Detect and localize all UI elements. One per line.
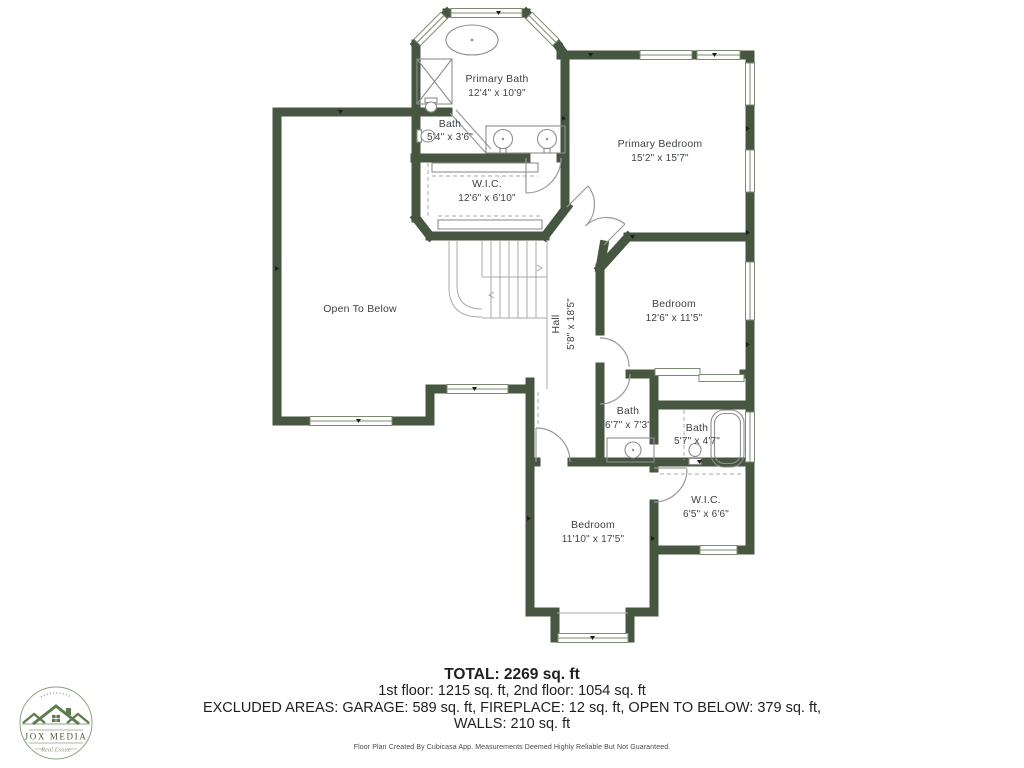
bathtub-oval-symbol <box>446 25 498 55</box>
room-label-bath-2: Bath 5'7" x 4'7" <box>674 422 720 447</box>
stairs-symbol <box>449 240 547 389</box>
logo-tagline: Real Estate <box>40 747 71 754</box>
svg-text:15'2" x 15'7": 15'2" x 15'7" <box>631 153 689 164</box>
room-label-primary-bath: Primary Bath 12'4" x 10'9" <box>465 73 528 99</box>
shower-symbol <box>417 59 452 104</box>
floor-plan: Primary Bath 12'4" x 10'9" Bath 5'4" x 3… <box>0 0 1024 660</box>
svg-text:6'5" x 6'6": 6'5" x 6'6" <box>683 509 729 520</box>
room-label-primary-bedroom: Primary Bedroom 15'2" x 15'7" <box>618 138 703 164</box>
svg-text:Bath: Bath <box>617 405 639 417</box>
svg-text:Bath: Bath <box>439 118 461 130</box>
sliding-door-symbol <box>655 369 744 382</box>
svg-text:12'4" x 10'9": 12'4" x 10'9" <box>468 88 526 99</box>
svg-text:11'10" x 17'5": 11'10" x 17'5" <box>562 534 625 545</box>
window-symbol <box>746 412 755 462</box>
window-symbol <box>746 150 755 192</box>
window-symbol <box>310 417 392 426</box>
room-label-bedroom-3: Bedroom 11'10" x 17'5" <box>562 519 625 545</box>
svg-text:Bath: Bath <box>686 422 708 434</box>
svg-text:Hall: Hall <box>550 315 562 334</box>
svg-text:5'4" x 3'6": 5'4" x 3'6" <box>427 132 473 143</box>
window-symbol <box>746 63 755 105</box>
area-summary: TOTAL: 2269 sq. ft 1st floor: 1215 sq. f… <box>0 666 1024 751</box>
window-symbol <box>447 385 508 394</box>
toilet-symbol <box>425 98 437 112</box>
svg-text:5'7" x 4'7": 5'7" x 4'7" <box>674 436 720 447</box>
window-symbol <box>746 262 755 320</box>
total-area-text: TOTAL: 2269 sq. ft <box>0 666 1024 683</box>
window-symbol <box>526 12 559 45</box>
window-symbol <box>640 51 692 60</box>
svg-text:Open To Below: Open To Below <box>323 303 397 315</box>
window-symbol <box>700 546 737 555</box>
door-arc <box>654 468 687 502</box>
svg-text:6'7" x 7'3": 6'7" x 7'3" <box>605 420 651 431</box>
double-door-arc <box>567 186 625 245</box>
svg-text:W.I.C.: W.I.C. <box>472 178 502 190</box>
window-symbol <box>451 9 522 18</box>
jox-media-logo: JOX MEDIA Real Estate <box>17 685 95 763</box>
svg-text:Bedroom: Bedroom <box>571 519 615 531</box>
room-label-wic-2: W.I.C. 6'5" x 6'6" <box>683 494 729 520</box>
svg-text:Primary Bedroom: Primary Bedroom <box>618 138 703 150</box>
disclaimer-text: Floor Plan Created By Cubicasa App. Meas… <box>0 744 1024 751</box>
excluded-areas-text: EXCLUDED AREAS: GARAGE: 589 sq. ft, FIRE… <box>0 700 1024 717</box>
floor-areas-text: 1st floor: 1215 sq. ft, 2nd floor: 1054 … <box>0 683 1024 700</box>
window-symbol <box>414 12 447 45</box>
room-label-open-to-below: Open To Below <box>323 303 397 315</box>
svg-text:5'8" x 18'5": 5'8" x 18'5" <box>566 298 577 350</box>
door-arc <box>536 428 570 462</box>
svg-text:Primary Bath: Primary Bath <box>465 73 528 85</box>
svg-text:Bedroom: Bedroom <box>652 298 696 310</box>
window-symbol <box>697 51 740 60</box>
room-label-bedroom-2: Bedroom 12'6" x 11'5" <box>646 298 703 324</box>
double-sink-vanity-symbol <box>486 126 565 153</box>
walls-area-text: WALLS: 210 sq. ft <box>0 716 1024 733</box>
svg-text:12'6" x 11'5": 12'6" x 11'5" <box>646 313 703 324</box>
svg-text:12'6" x 6'10": 12'6" x 6'10" <box>458 193 516 204</box>
svg-text:W.I.C.: W.I.C. <box>691 494 721 506</box>
room-label-hall: Hall 5'8" x 18'5" <box>550 298 577 350</box>
floor-plan-page: Primary Bath 12'4" x 10'9" Bath 5'4" x 3… <box>0 0 1024 768</box>
room-label-wic-primary: W.I.C. 12'6" x 6'10" <box>458 178 516 204</box>
walls-layer <box>277 13 750 638</box>
room-label-bath-hall: Bath 6'7" x 7'3" <box>605 405 651 431</box>
logo-name: JOX MEDIA <box>25 732 88 742</box>
